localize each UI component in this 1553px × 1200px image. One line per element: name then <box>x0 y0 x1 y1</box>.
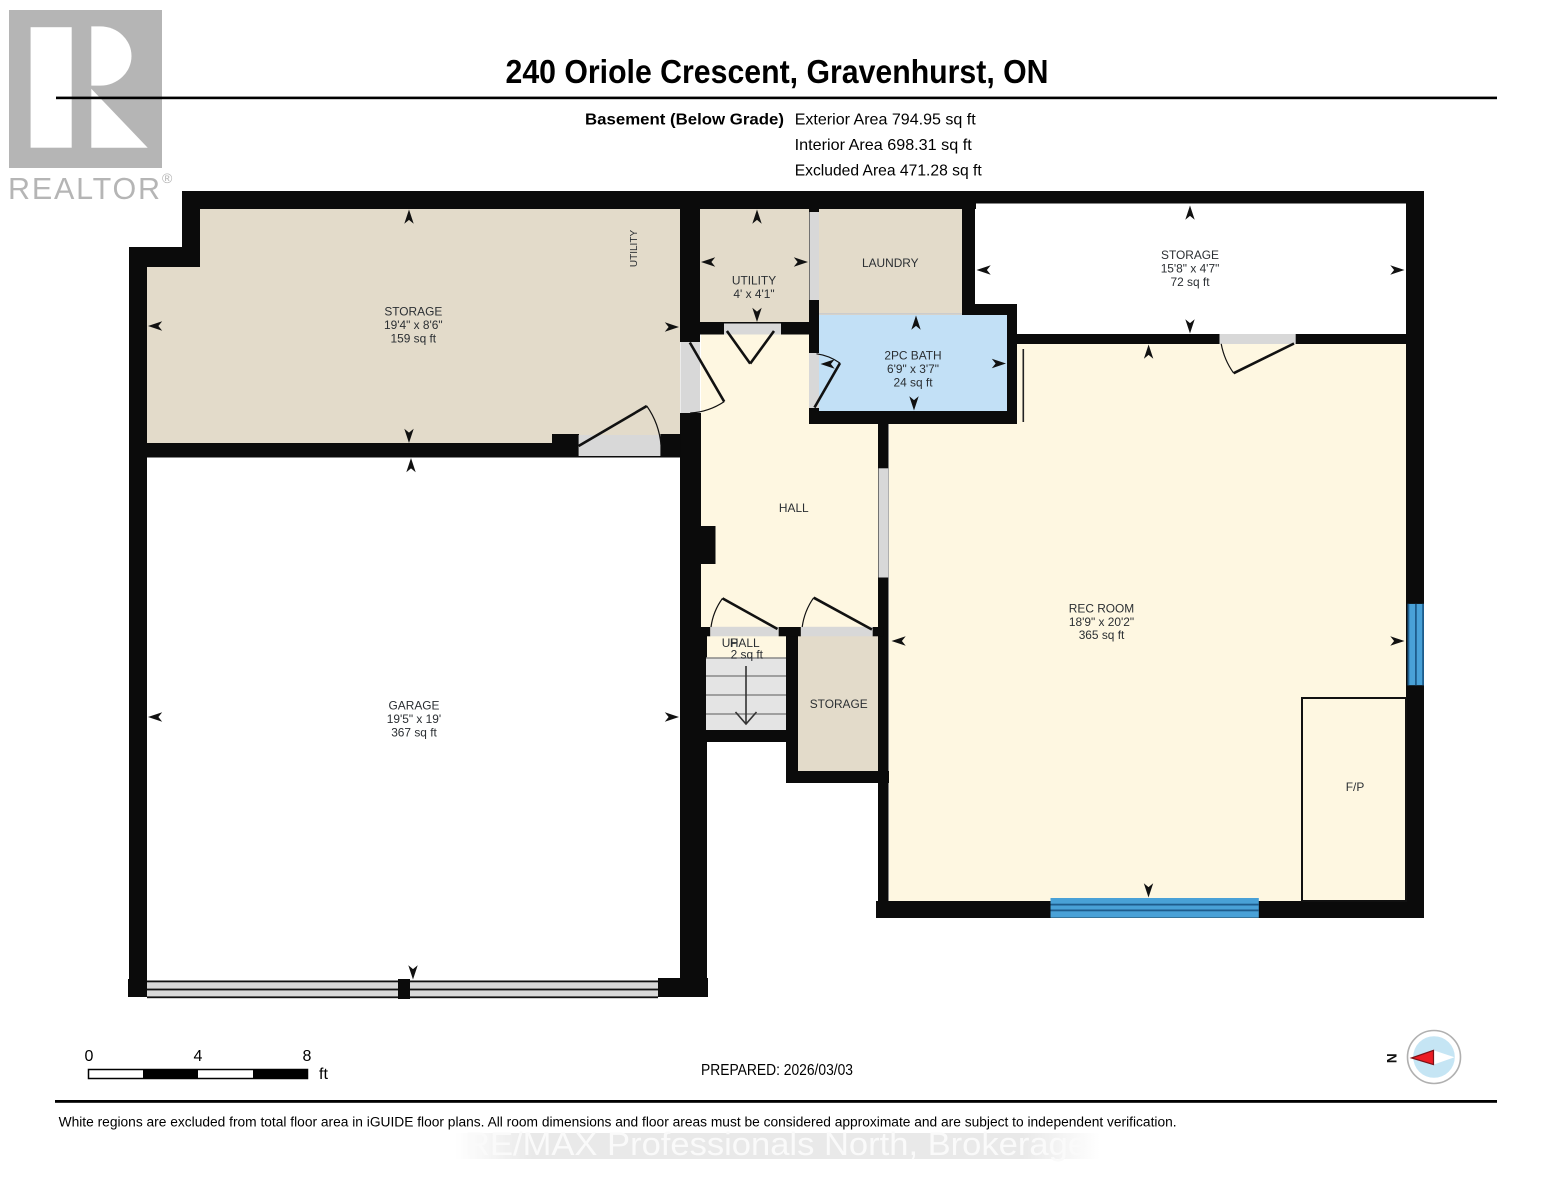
svg-text:240 Oriole Crescent, Gravenhur: 240 Oriole Crescent, Gravenhurst, ON <box>506 53 1049 90</box>
svg-text:Excluded Area 471.28 sq ft: Excluded Area 471.28 sq ft <box>795 163 983 180</box>
svg-text:UTILITY: UTILITY <box>629 230 640 268</box>
svg-text:REALTOR: REALTOR <box>8 172 162 206</box>
svg-text:8: 8 <box>303 1048 312 1065</box>
svg-text:2 sq ft: 2 sq ft <box>731 647 764 661</box>
svg-text:PREPARED: 2026/03/03: PREPARED: 2026/03/03 <box>701 1062 853 1079</box>
svg-text:GARAGE: GARAGE <box>389 699 440 713</box>
svg-text:72 sq ft: 72 sq ft <box>1171 275 1211 289</box>
svg-text:F/P: F/P <box>1346 780 1365 794</box>
svg-text:RE/MAX Professionals North, Br: RE/MAX Professionals North, Brokerage <box>465 1126 1087 1162</box>
svg-text:15'8" x 4'7": 15'8" x 4'7" <box>1161 261 1220 275</box>
svg-text:24 sq ft: 24 sq ft <box>894 375 934 389</box>
svg-text:19'5" x 19': 19'5" x 19' <box>387 712 441 726</box>
svg-text:STORAGE: STORAGE <box>810 697 868 711</box>
svg-text:4: 4 <box>194 1048 203 1065</box>
svg-text:STORAGE: STORAGE <box>384 305 442 319</box>
svg-text:HALL: HALL <box>779 501 809 515</box>
svg-text:19'4" x 8'6": 19'4" x 8'6" <box>384 318 443 332</box>
svg-text:Interior Area 698.31 sq ft: Interior Area 698.31 sq ft <box>795 137 973 154</box>
svg-text:18'9" x 20'2": 18'9" x 20'2" <box>1069 615 1134 629</box>
svg-text:Exterior Area 794.95 sq ft: Exterior Area 794.95 sq ft <box>795 112 977 129</box>
svg-text:ft: ft <box>319 1066 328 1083</box>
svg-text:UTILITY: UTILITY <box>732 274 776 288</box>
svg-text:N: N <box>1385 1053 1400 1063</box>
svg-text:0: 0 <box>85 1048 94 1065</box>
svg-text:2PC BATH: 2PC BATH <box>884 349 941 363</box>
svg-text:6'9" x 3'7": 6'9" x 3'7" <box>887 362 939 376</box>
svg-text:LAUNDRY: LAUNDRY <box>862 256 919 270</box>
svg-text:®: ® <box>162 170 173 186</box>
svg-text:REC ROOM: REC ROOM <box>1069 601 1134 615</box>
svg-text:STORAGE: STORAGE <box>1161 248 1219 262</box>
svg-text:367 sq ft: 367 sq ft <box>391 725 437 739</box>
svg-text:Basement (Below Grade): Basement (Below Grade) <box>585 112 784 129</box>
svg-text:4' x 4'1": 4' x 4'1" <box>733 287 774 301</box>
svg-text:365 sq ft: 365 sq ft <box>1079 628 1125 642</box>
svg-text:159 sq ft: 159 sq ft <box>390 331 436 345</box>
